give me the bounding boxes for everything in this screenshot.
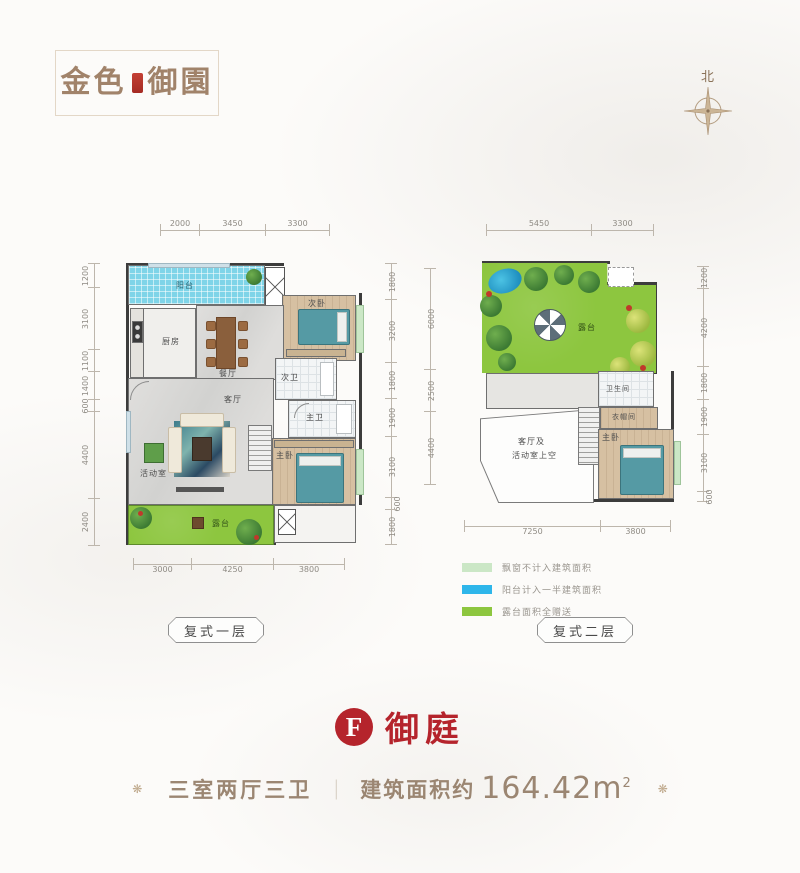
dim-value: 1800 — [701, 373, 709, 393]
tv-stand-icon — [176, 487, 224, 492]
plan2-dims-right: 1200 4200 1800 1900 3100 600 — [697, 266, 709, 502]
window — [148, 263, 230, 268]
dim-value: 3450 — [200, 220, 265, 228]
bed-icon — [620, 445, 664, 495]
plan2-dims-top: 5450 3300 — [486, 224, 654, 236]
compass: 北 — [680, 66, 736, 141]
dim-value: 7250 — [465, 528, 600, 536]
tree-icon — [524, 267, 548, 291]
dim-value: 3100 — [82, 308, 90, 328]
rosette-icon: ❋ — [658, 782, 668, 796]
dining-table-icon — [216, 317, 236, 369]
room-label-kitchen: 厨房 — [162, 337, 180, 347]
sofa-icon — [180, 413, 224, 427]
landing-area — [486, 373, 600, 409]
brand-logo-text-right: 御園 — [148, 68, 214, 98]
bed-icon — [296, 453, 344, 503]
tree-icon — [246, 269, 262, 285]
dim-value: 1800 — [389, 271, 397, 291]
coffee-table-icon — [192, 437, 212, 461]
room-balcony — [128, 265, 265, 305]
game-table-icon — [144, 443, 164, 463]
room-label-void-2: 活动室上空 — [512, 451, 557, 461]
bay-window — [356, 449, 364, 495]
legend-swatch-balcony — [462, 585, 492, 594]
dim-value: 1200 — [82, 265, 90, 285]
plaque-level2: 复式二层 — [537, 617, 633, 643]
dim-value: 4400 — [82, 445, 90, 465]
wardrobe-icon — [286, 349, 346, 357]
room-label-roof-terrace: 露台 — [578, 323, 596, 333]
dim-value: 3200 — [389, 321, 397, 341]
room-label-closet: 衣帽间 — [612, 413, 636, 422]
plan1-dims-left: 1200 3100 1100 1400 600 4400 2400 — [88, 263, 100, 546]
tree-icon — [480, 295, 502, 317]
dim-value: 1900 — [701, 407, 709, 427]
legend-swatch-baywindow — [462, 563, 492, 572]
bay-window — [356, 305, 364, 353]
dim-value: 3300 — [592, 220, 653, 228]
room-label-bedroom2: 次卧 — [308, 299, 326, 309]
unit-title-row: F 御庭 — [335, 702, 465, 751]
sofa-icon — [168, 427, 182, 473]
area-sup: 2 — [622, 776, 631, 791]
bush-icon — [626, 309, 650, 333]
room-label-void-1: 客厅及 — [518, 437, 545, 447]
dim-value: 1200 — [701, 267, 709, 287]
tree-icon — [554, 265, 574, 285]
flower-icon — [254, 535, 259, 540]
stairs-icon — [578, 407, 600, 465]
dim-value: 600 — [706, 489, 714, 504]
flower-icon — [486, 291, 492, 297]
dim-value: 1800 — [389, 370, 397, 390]
plaque-level2-label: 复式二层 — [538, 618, 632, 642]
unit-spec-row: ❋ 三室两厅三卫 ｜ 建筑面积约 164.42m2 ❋ — [106, 771, 694, 806]
chair-icon — [238, 321, 248, 331]
dim-value: 5450 — [487, 220, 591, 228]
spec-divider: ｜ — [326, 774, 346, 803]
tree-icon — [498, 353, 516, 371]
room-label-bath: 卫生间 — [606, 385, 630, 394]
floorplan-level2: 露台 客厅及 活动室上空 卫生间 衣帽间 主卧 — [478, 261, 680, 513]
unit-badge: F — [335, 708, 373, 746]
wardrobe-icon — [274, 440, 354, 448]
dim-value: 2400 — [82, 512, 90, 532]
plan2-dims-bottom: 7250 3800 — [464, 520, 671, 532]
brochure-page: 金色 御園 北 阳台 次卧 — [0, 0, 800, 873]
plan1-dims-bottom: 3000 4250 3800 — [133, 558, 345, 570]
chair-icon — [206, 321, 216, 331]
legend-label: 飘窗不计入建筑面积 — [502, 561, 592, 574]
legend-item: 飘窗不计入建筑面积 — [462, 556, 602, 578]
window — [126, 411, 131, 453]
unit-area-label: 建筑面积约 — [360, 774, 475, 804]
plan1-dims-right: 1800 3200 1800 1900 3100 600 1800 — [385, 263, 397, 545]
dim-value: 2500 — [428, 380, 436, 400]
bed-icon — [298, 309, 350, 345]
room-label-balcony: 阳台 — [176, 281, 194, 291]
dim-value: 1100 — [82, 350, 90, 370]
sofa-icon — [222, 427, 236, 473]
stairs-icon — [248, 425, 272, 471]
dim-value: 4400 — [428, 438, 436, 458]
dim-value: 6000 — [428, 309, 436, 329]
unit-name: 御庭 — [385, 702, 465, 751]
bathtub-icon — [320, 362, 334, 396]
room-label-bath1: 主卫 — [306, 413, 324, 423]
legend-item: 阳台计入一半建筑面积 — [462, 578, 602, 600]
planter-box — [608, 267, 634, 287]
room-label-master: 主卧 — [276, 451, 294, 461]
flower-icon — [626, 305, 632, 311]
room-label-activity: 活动室 — [140, 469, 167, 479]
room-label-living: 客厅 — [224, 395, 242, 405]
chair-icon — [206, 357, 216, 367]
dim-value: 2000 — [161, 220, 199, 228]
plaque-level1: 复式一层 — [168, 617, 264, 643]
floorplan-level1: 阳台 次卧 厨房 餐厅 客厅 活动室 — [118, 261, 376, 549]
dim-value: 4200 — [701, 317, 709, 337]
room-label-bath2: 次卫 — [281, 373, 299, 383]
legend: 飘窗不计入建筑面积 阳台计入一半建筑面积 露台面积全赠送 — [462, 556, 602, 622]
unit-area-value: 164.42m2 — [481, 771, 632, 806]
chair-icon — [238, 339, 248, 349]
stove-icon — [132, 321, 143, 343]
dim-value: 1900 — [389, 407, 397, 427]
compass-north-label: 北 — [680, 66, 736, 85]
dim-value: 3800 — [274, 566, 344, 574]
dim-value: 1800 — [389, 517, 397, 537]
legend-swatch-terrace — [462, 607, 492, 616]
dim-value: 3100 — [389, 457, 397, 477]
bush-icon — [630, 341, 656, 367]
plan2-dims-left: 6000 2500 4400 — [424, 268, 436, 485]
flower-icon — [138, 511, 143, 516]
tree-icon — [486, 325, 512, 351]
legend-label: 阳台计入一半建筑面积 — [502, 583, 602, 596]
unit-spec: 三室两厅三卫 — [168, 774, 312, 804]
tree-icon — [236, 519, 262, 545]
tree-icon — [578, 271, 600, 293]
room-label-master2: 主卧 — [602, 433, 620, 443]
plan1-dims-top: 2000 3450 3300 — [160, 224, 330, 236]
rosette-icon: ❋ — [132, 782, 142, 796]
area-number: 164.42 — [481, 771, 592, 806]
umbrella-icon — [534, 309, 566, 341]
brand-seal-icon — [132, 73, 143, 93]
brand-logo-text-left: 金色 — [61, 68, 127, 98]
elevator-shaft-icon — [278, 509, 296, 535]
room-label-terrace: 露台 — [212, 519, 230, 529]
bathtub-icon — [336, 404, 352, 434]
dim-value: 4250 — [192, 566, 273, 574]
chair-icon — [238, 357, 248, 367]
unit-info: F 御庭 ❋ 三室两厅三卫 ｜ 建筑面积约 164.42m2 ❋ — [0, 702, 800, 806]
bay-window — [674, 441, 681, 485]
dim-value: 1400 — [82, 375, 90, 395]
chair-icon — [206, 339, 216, 349]
dim-value: 3100 — [701, 453, 709, 473]
compass-rose-icon — [682, 85, 734, 137]
kitchen-counter-icon — [130, 308, 144, 378]
legend-label: 露台面积全赠送 — [502, 605, 572, 618]
dim-value: 3300 — [266, 220, 329, 228]
dim-value: 3000 — [134, 566, 191, 574]
dim-value: 3800 — [601, 528, 670, 536]
patio-table-icon — [192, 517, 204, 529]
area-unit: m — [592, 771, 622, 806]
plaque-level1-label: 复式一层 — [169, 618, 263, 642]
brand-logo: 金色 御園 — [55, 50, 219, 116]
